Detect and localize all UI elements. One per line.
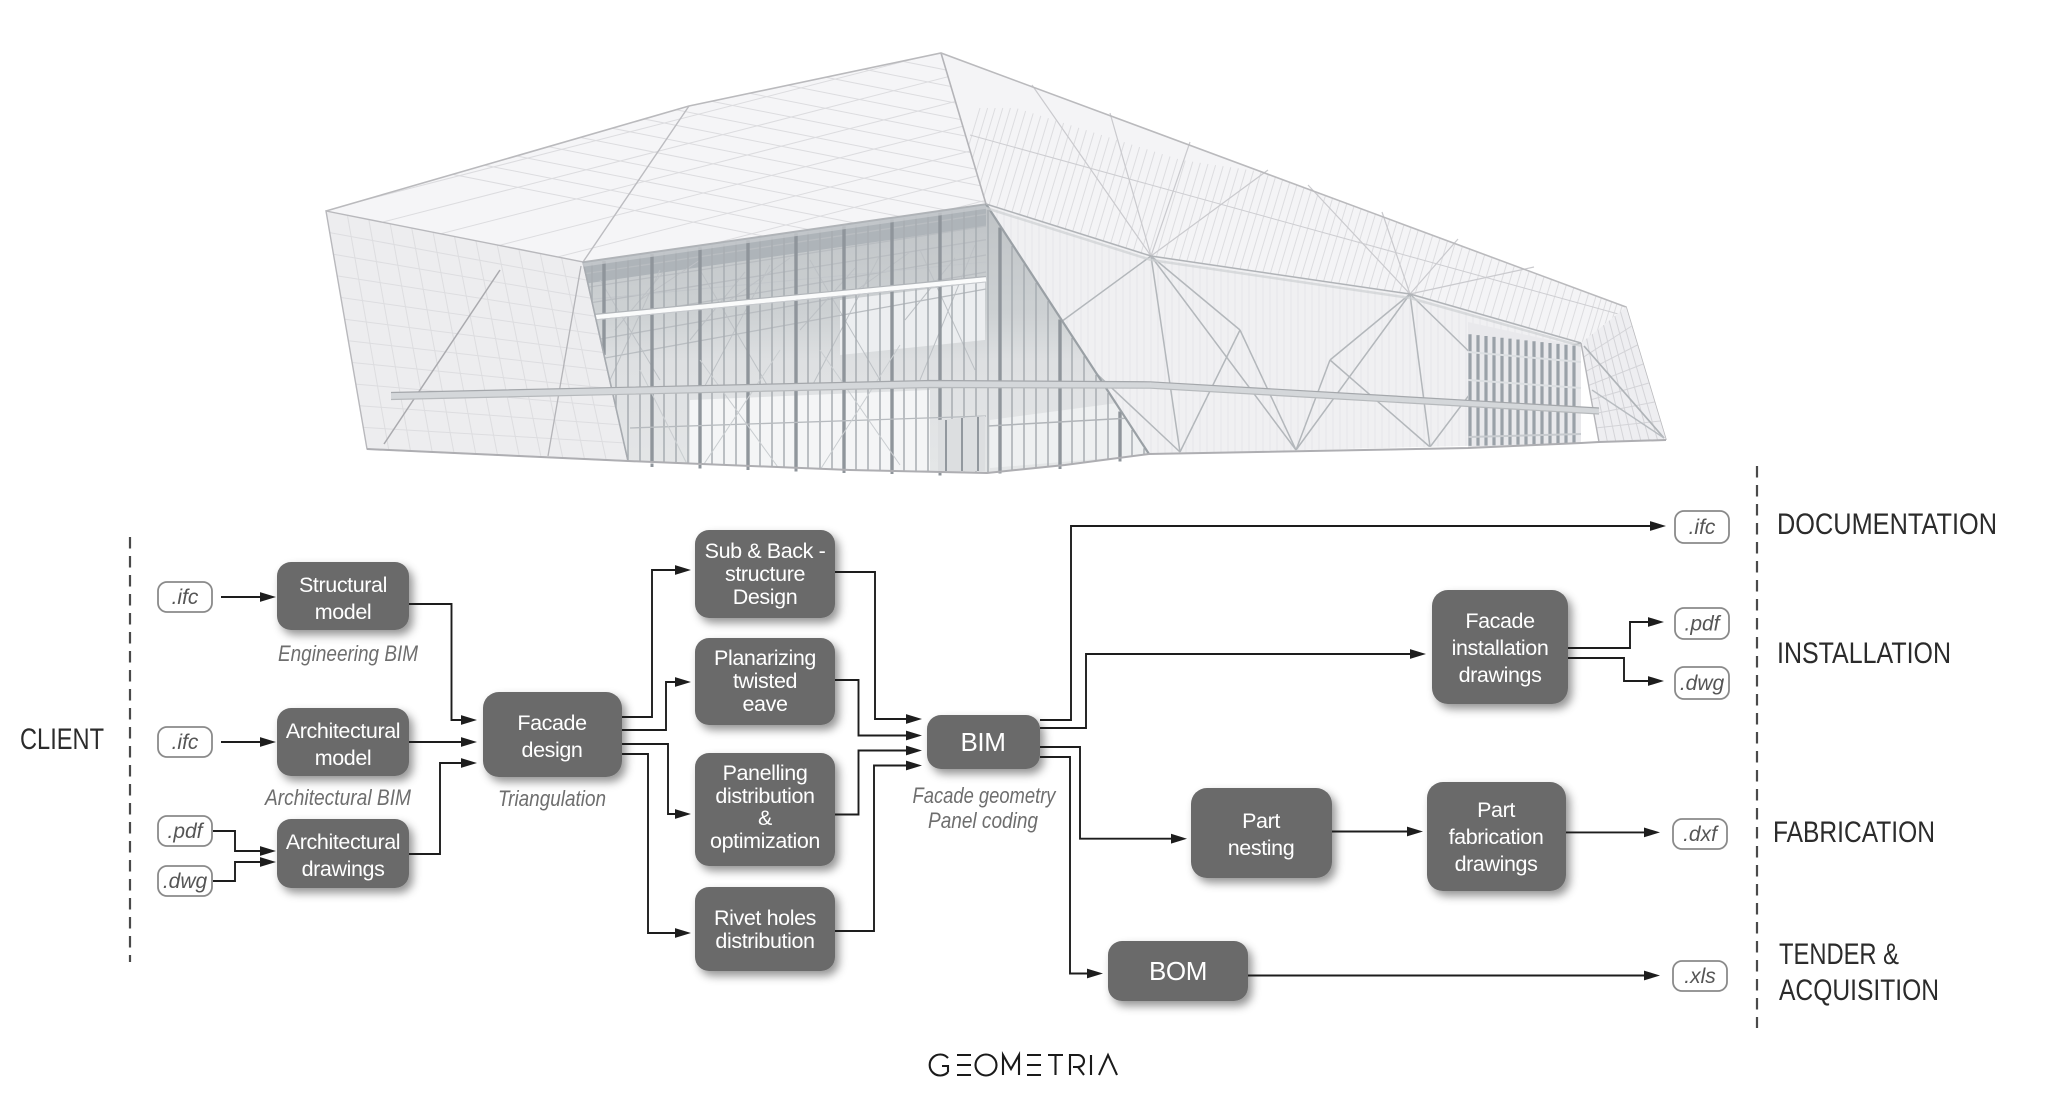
svg-text:Facade geometry: Facade geometry — [913, 783, 1058, 808]
svg-text:model: model — [315, 746, 372, 770]
svg-text:Part: Part — [1242, 809, 1280, 833]
svg-text:ACQUISITION: ACQUISITION — [1779, 974, 1939, 1007]
svg-text:structure: structure — [725, 562, 805, 586]
svg-text:installation: installation — [1452, 636, 1549, 660]
svg-text:FABRICATION: FABRICATION — [1773, 816, 1935, 849]
svg-text:.ifc: .ifc — [172, 586, 199, 609]
svg-text:nesting: nesting — [1228, 836, 1295, 860]
svg-text:Planarizing: Planarizing — [714, 646, 816, 670]
svg-text:eave: eave — [742, 692, 787, 716]
svg-text:Panel coding: Panel coding — [928, 808, 1039, 833]
svg-text:distribution: distribution — [715, 929, 814, 953]
svg-text:INSTALLATION: INSTALLATION — [1777, 637, 1951, 670]
svg-text:BOM: BOM — [1149, 956, 1207, 986]
svg-text:Structural: Structural — [299, 573, 387, 597]
svg-text:DOCUMENTATION: DOCUMENTATION — [1777, 508, 1997, 541]
svg-text:distribution: distribution — [715, 784, 814, 808]
svg-text:.xls: .xls — [1684, 965, 1716, 988]
svg-text:.ifc: .ifc — [172, 731, 199, 754]
svg-text:Engineering BIM: Engineering BIM — [278, 641, 419, 666]
svg-text:.pdf: .pdf — [167, 820, 204, 843]
svg-text:Rivet holes: Rivet holes — [714, 906, 816, 930]
svg-text:Architectural: Architectural — [286, 719, 400, 743]
svg-text:Architectural BIM: Architectural BIM — [263, 785, 411, 810]
svg-text:optimization: optimization — [710, 829, 820, 853]
svg-text:drawings: drawings — [302, 857, 385, 881]
svg-text:design: design — [522, 738, 583, 762]
svg-text:Design: Design — [733, 585, 798, 609]
svg-text:Architectural: Architectural — [286, 830, 400, 854]
svg-text:.dwg: .dwg — [1680, 672, 1725, 695]
svg-text:twisted: twisted — [733, 669, 797, 693]
svg-text:drawings: drawings — [1455, 852, 1538, 876]
svg-text:Sub & Back -: Sub & Back - — [705, 539, 826, 563]
svg-text:.pdf: .pdf — [1684, 613, 1721, 636]
svg-text:Triangulation: Triangulation — [498, 786, 606, 811]
svg-text:&: & — [758, 806, 772, 830]
svg-text:.ifc: .ifc — [1689, 516, 1716, 539]
svg-text:fabrication: fabrication — [1449, 825, 1544, 849]
svg-text:TENDER &: TENDER & — [1779, 938, 1899, 971]
svg-text:Panelling: Panelling — [723, 761, 808, 785]
svg-text:drawings: drawings — [1459, 663, 1542, 687]
svg-text:Facade: Facade — [1465, 609, 1534, 633]
svg-text:Facade: Facade — [517, 711, 586, 735]
svg-text:model: model — [315, 600, 372, 624]
svg-text:.dxf: .dxf — [1683, 823, 1719, 846]
svg-text:.dwg: .dwg — [163, 870, 208, 893]
svg-text:BIM: BIM — [960, 727, 1005, 757]
svg-text:Part: Part — [1477, 798, 1515, 822]
svg-text:CLIENT: CLIENT — [20, 723, 104, 756]
